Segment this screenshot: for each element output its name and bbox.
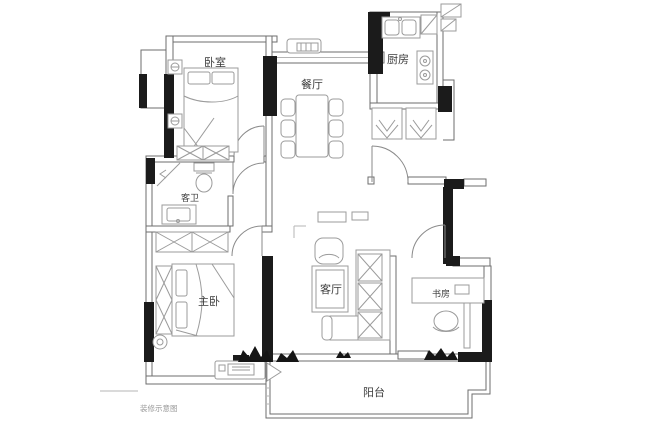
toilet-icon [194,163,214,192]
wardrobe-icon [156,232,228,252]
tv-console-icon [318,212,346,222]
armchair-icon [315,238,343,264]
tv-console-icon [352,212,368,220]
vent-shafts [441,4,461,31]
room-label-dining: 餐厅 [301,77,323,91]
room-label-kitchen: 厨房 [387,53,409,66]
room-label-guest-bath: 客卫 [181,192,199,204]
floor-lamp-icon [153,335,167,349]
bedroom-furniture [168,60,238,160]
study-furniture [412,278,484,348]
entry-door-icon [372,146,408,182]
vanity-sink-icon [162,205,196,224]
wardrobe-icon [177,146,229,160]
floor-plan-drawing: 卧室 餐厅 厨房 客卫 主卧 客厅 书房 阳台 装修示意图 [0,0,660,440]
kitchen-furniture [372,15,437,139]
corner-cabinet-icon [421,15,437,34]
entry-cabinet-icon [372,108,402,139]
living-furniture [312,212,390,340]
room-label-study: 书房 [432,288,450,300]
bathroom-door-icon [233,162,264,194]
desk-chair-icon [433,311,459,332]
room-label-master: 主卧 [198,295,220,308]
study-door-icon [412,225,445,258]
bed-icon [184,68,238,152]
nightstand-icon [168,114,182,128]
stove-icon [417,51,433,84]
ac-unit-icon [287,39,321,53]
room-label-bedroom: 卧室 [204,55,226,69]
tv-cabinet-icon [215,361,265,379]
kitchen-sink-icon [382,17,420,38]
caption: 装修示意图 [140,403,178,413]
headboard-cabinet-icon [156,266,172,334]
entry-cabinet-icon [406,108,436,139]
dining-table-icon [281,95,343,158]
balcony-step-icon [267,363,281,381]
room-label-living: 客厅 [320,282,342,296]
shower-icon [157,163,180,186]
nightstand-icon [168,60,182,74]
floor-plan: 卧室 餐厅 厨房 客卫 主卧 客厅 书房 阳台 装修示意图 [0,0,660,440]
room-label-balcony: 阳台 [363,385,385,399]
master-door-icon [232,226,262,256]
